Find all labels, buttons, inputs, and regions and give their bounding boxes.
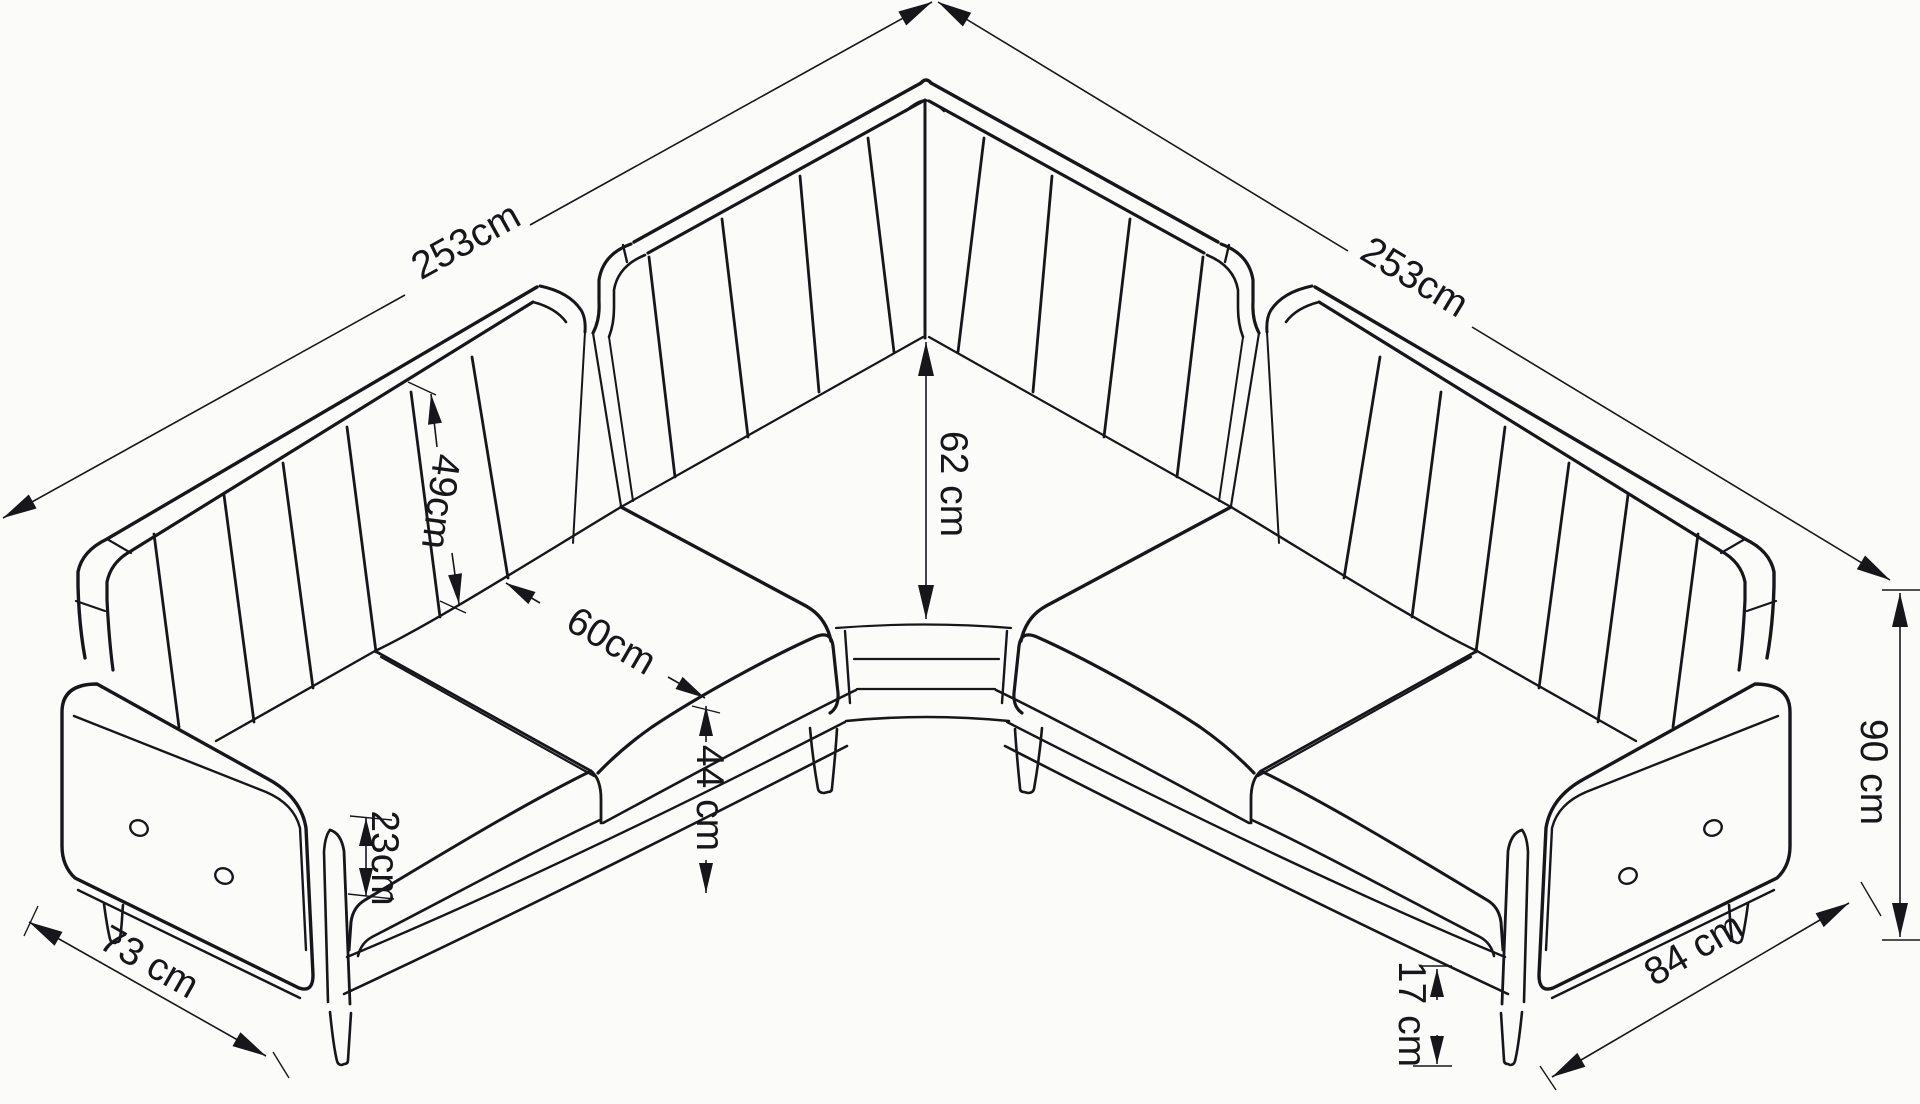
svg-text:62 cm: 62 cm — [932, 431, 975, 537]
svg-text:44 cm: 44 cm — [688, 745, 731, 851]
svg-text:90 cm: 90 cm — [1852, 719, 1895, 825]
svg-text:23cm: 23cm — [363, 810, 406, 905]
svg-text:17 cm: 17 cm — [1390, 961, 1433, 1067]
